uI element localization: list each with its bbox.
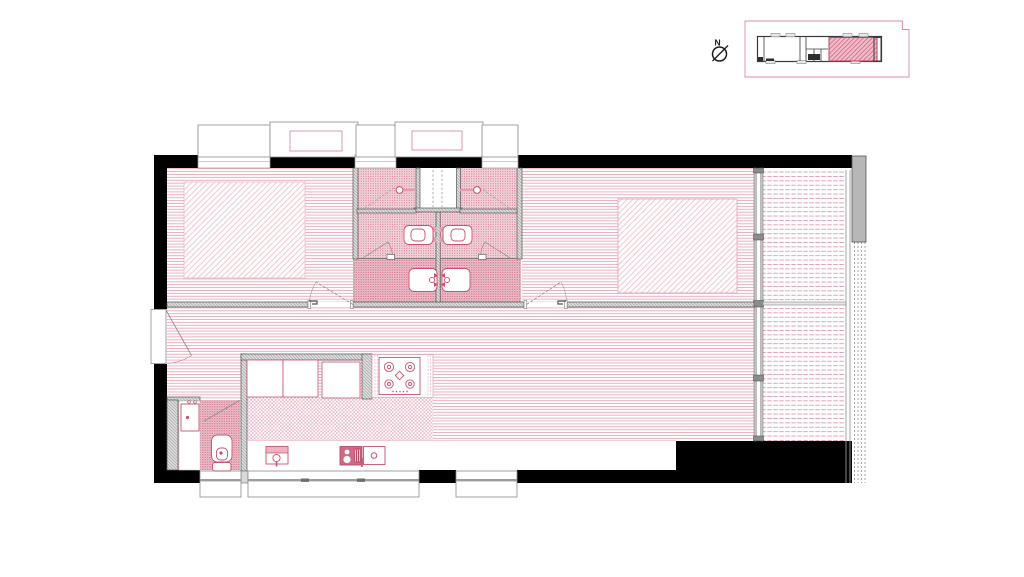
svg-text:N: N [715, 38, 721, 48]
